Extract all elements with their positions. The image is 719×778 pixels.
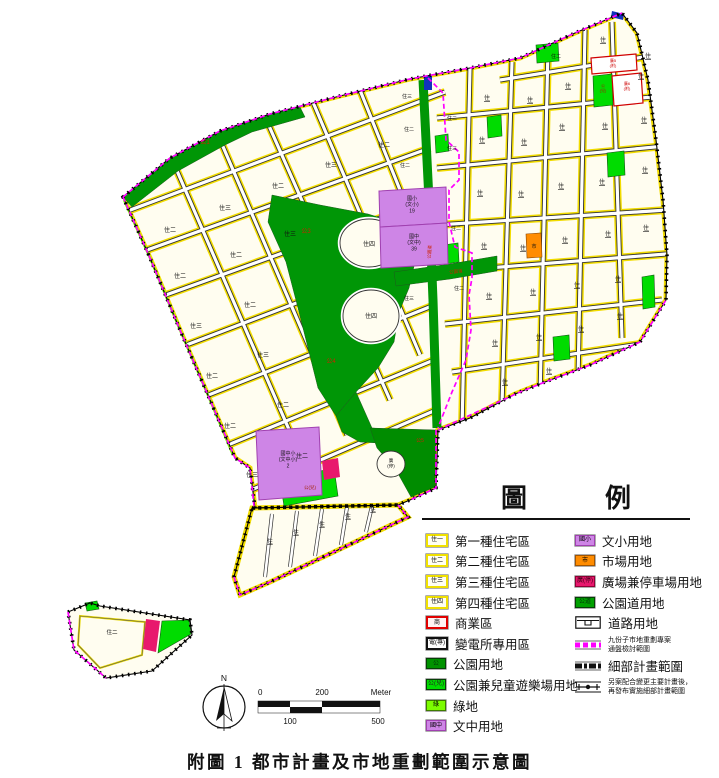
legend-column-left: 住一 第一種住宅區 住二 第二種住宅區 住三 第三種住宅區 住四 第四種住宅區 … — [426, 530, 576, 736]
map-label: 住 — [599, 178, 605, 186]
map-label: 公4 — [326, 358, 336, 365]
plaza-parking-parcel — [322, 458, 340, 480]
map-label: 住 — [645, 52, 651, 60]
map-label: 住四 — [363, 240, 375, 248]
map-label: 住 — [484, 94, 490, 102]
legend-heading-char-1: 圖 — [501, 478, 527, 515]
park-swatch: 公 — [426, 658, 446, 669]
detached-island — [68, 601, 192, 678]
map-label: 住三 — [325, 161, 337, 169]
legend-item-res2: 住二 第二種住宅區 — [426, 551, 576, 572]
map-label: 公5 — [416, 438, 424, 444]
map-label: 住三 — [404, 295, 414, 302]
scale-label-500: 500 — [371, 717, 385, 726]
map-label: 住三 — [190, 322, 202, 330]
map-label: 住二 — [454, 285, 464, 292]
map-label: 住二 — [404, 126, 414, 133]
elementary-swatch: 國小 — [575, 535, 595, 546]
legend-item-parkway: 公道 公園道用地 — [575, 592, 715, 613]
greenbelt-swatch: 綠 — [426, 700, 446, 711]
scale-label-100: 100 — [283, 717, 297, 726]
map-label: 住三 — [257, 351, 269, 359]
legend-item-detail-plan-scope: 細部計畫範圍 — [575, 657, 715, 675]
res3-swatch: 住三 — [426, 575, 448, 588]
map-label: 住 — [319, 520, 325, 528]
compass-needle-icon — [216, 687, 224, 721]
res2-swatch: 住二 — [426, 554, 448, 567]
map-label: 住二 — [277, 401, 289, 409]
map-label: 公1 — [200, 139, 210, 146]
map-label: 住 — [479, 136, 485, 144]
map-label: 住二 — [206, 372, 218, 380]
map-label: 住二 — [451, 225, 461, 232]
map-label: 住 — [520, 244, 526, 252]
north-compass: N — [203, 673, 245, 731]
map-label: 住二 — [400, 162, 410, 169]
map-label: 住 — [486, 292, 492, 300]
legend-item-elementary: 國小 文小用地 — [575, 530, 715, 551]
plaza-parking-swatch: 廣(停) — [575, 576, 595, 587]
legend-panel: 圖 例 住一 第一種住宅區 住二 第二種住宅區 住三 第三種住宅區 住四 第四種… — [420, 478, 712, 520]
map-label: 住二 — [551, 53, 561, 60]
legend-item-kids-park: 公(兒) 公園兼兒童遊樂場用地 — [426, 674, 576, 695]
legend-item-commercial: 商 商業區 — [426, 612, 576, 633]
map-label: 公3 — [301, 228, 311, 235]
map-label: 住二 — [296, 452, 308, 460]
map-label: 住 — [502, 378, 508, 386]
scale-label-200: 200 — [315, 688, 329, 697]
map-label: 住三 — [284, 230, 296, 238]
scale-unit-label: Meter — [371, 688, 392, 697]
map-label: 住 — [521, 138, 527, 146]
map-label: 住 — [530, 288, 536, 296]
map-label: 住 — [546, 367, 552, 375]
map-label: 住 — [638, 72, 644, 80]
map-label: 住 — [492, 339, 498, 347]
legend-item-plaza-parking: 廣(停) 廣場兼停車場用地 — [575, 571, 715, 592]
legend-item-road: 道路用地 — [575, 612, 715, 633]
map-label: 住 — [481, 242, 487, 250]
map-label: 住二 — [164, 226, 176, 234]
map-label: 住二 — [106, 628, 118, 636]
magenta-dash-swatch-icon — [575, 639, 601, 650]
legend-item-future-detail-plan: 另案配合變更主要計畫後， 再發布實施細部計畫範圍 — [575, 675, 715, 699]
map-label: 住 — [642, 166, 648, 174]
map-label: 住三 — [402, 93, 412, 100]
map-label: 住 — [559, 123, 565, 131]
map-label: 廣5(附) — [610, 57, 617, 68]
legend-item-market: 市 市場用地 — [575, 551, 715, 572]
map-label: 市 — [531, 243, 536, 250]
market-swatch: 市 — [575, 555, 595, 566]
legend-item-res4: 住四 第四種住宅區 — [426, 592, 576, 613]
legend-item-greenbelt: 綠 綠地 — [426, 695, 576, 716]
legend-item-junior-high: 國中 文中用地 — [426, 715, 576, 736]
map-label: 住 — [578, 325, 584, 333]
res4-swatch: 住四 — [426, 596, 448, 609]
commercial-swatch: 商 — [426, 616, 448, 629]
map-label: 住 — [518, 190, 524, 198]
map-label: 住二 — [174, 272, 186, 280]
black-dash-swatch-icon — [575, 660, 601, 671]
map-label: 住 — [562, 236, 568, 244]
map-label: 住 — [477, 189, 483, 197]
scale-bar: 0 200 Meter 100 500 — [258, 688, 392, 726]
map-label: 住 — [602, 122, 608, 130]
map-label: 住 — [641, 116, 647, 124]
legend-item-res3: 住三 第三種住宅區 — [426, 571, 576, 592]
map-label: 住三 — [447, 145, 457, 152]
substation-swatch: 電(專) — [426, 637, 448, 650]
map-label: 住二 — [230, 251, 242, 259]
north-label: N — [221, 673, 227, 683]
junior-high-swatch: 國中 — [426, 720, 446, 731]
map-label: 住 — [527, 96, 533, 104]
map-label: 住 — [558, 182, 564, 190]
map-label: 住 — [267, 537, 273, 545]
map-label: 住 — [600, 36, 606, 44]
map-label: 住二 — [224, 422, 236, 430]
map-label: 住二 — [272, 182, 284, 190]
scale-label-0: 0 — [258, 688, 263, 697]
kids-park-swatch: 公(兒) — [426, 679, 446, 690]
map-label: 住三 — [219, 204, 231, 212]
map-label: 住 — [345, 512, 351, 520]
map-label: 住二 — [378, 141, 390, 149]
map-label: 住二 — [447, 115, 457, 122]
parkway-swatch: 公道 — [575, 597, 595, 608]
legend-heading-rule — [422, 518, 690, 520]
map-label: 住 — [617, 312, 623, 320]
res1-swatch: 住一 — [426, 534, 448, 547]
legend-item-park: 公 公園用地 — [426, 654, 576, 675]
dot-line-swatch-icon — [575, 681, 601, 692]
map-label: 住二 — [244, 301, 256, 309]
future-detail-plan-label: 另案配合變更主要計畫後， 再發布實施細部計畫範圍 — [608, 678, 692, 696]
map-label: 廣6(附) — [624, 80, 631, 91]
legend-item-substation: 電(專) 變電所專用區 — [426, 633, 576, 654]
map-label: 住三 — [246, 471, 258, 479]
map-label: 住 — [293, 528, 299, 536]
review-scope-label: 九份子市地重劃專案 通盤檢討範圍 — [608, 636, 671, 654]
legend-heading-char-2: 例 — [605, 478, 631, 515]
map-label: 住四 — [365, 312, 377, 320]
legend-item-review-scope: 九份子市地重劃專案 通盤檢討範圍 — [575, 633, 715, 657]
road-swatch-icon — [575, 617, 601, 628]
legend-column-right: 國小 文小用地 市 市場用地 廣(停) 廣場兼停車場用地 公道 公園道用地 道路… — [575, 530, 715, 699]
legend-item-res1: 住一 第一種住宅區 — [426, 530, 576, 551]
map-label: 住 — [574, 281, 580, 289]
map-label: 住 — [536, 333, 542, 341]
map-label: 住 — [615, 275, 621, 283]
figure-title: 附圖 1 都市計畫及市地重劃範圍示意圖 — [0, 749, 719, 774]
map-label: 住 — [565, 82, 571, 90]
map-label: 住 — [370, 505, 376, 513]
map-label: 住 — [605, 230, 611, 238]
urban-plan-figure: 公1公3公4公5公園道公園道國小(文小)19國中(文中)39國中小(文中小)2市… — [0, 0, 719, 778]
map-label: 住 — [643, 224, 649, 232]
legend-heading: 圖 例 — [420, 478, 712, 515]
map-label: 公(兒) — [304, 484, 316, 491]
